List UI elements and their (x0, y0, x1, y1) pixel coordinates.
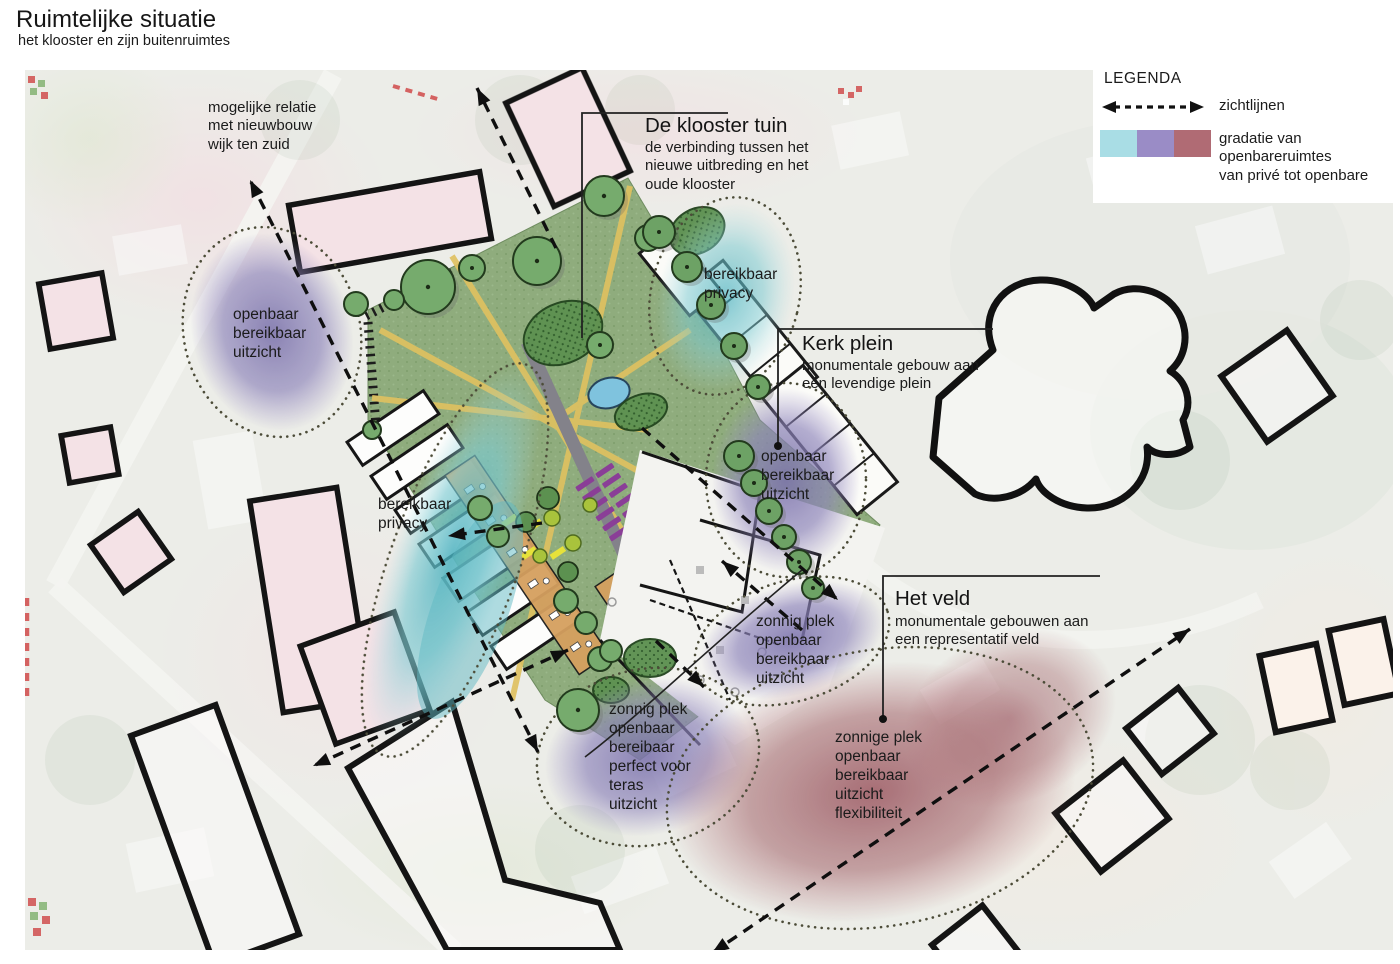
site-plan-page: Ruimtelijke situatie het klooster en zij… (0, 0, 1400, 964)
callout-klooster-tuin-title: De klooster tuin (645, 114, 787, 138)
relation-note: mogelijke relatie met nieuwbouw wijk ten… (208, 99, 316, 154)
page-subtitle: het klooster en zijn buitenruimtes (18, 33, 230, 49)
legend-heading: LEGENDA (1104, 70, 1182, 88)
swatch-semi-icon (1137, 130, 1174, 157)
callout-het-veld-title: Het veld (895, 587, 970, 611)
swatch-public-icon (1174, 130, 1211, 157)
legend-sightlines-label: zichtlijnen (1219, 97, 1285, 114)
legend-gradient-swatches (1100, 130, 1211, 157)
callout-het-veld-sub: monumentale gebouwen aan een representat… (895, 613, 1088, 650)
legend-gradient-label: gradatie van openbareruimtes van privé t… (1219, 130, 1368, 185)
callout-kerk-plein-sub: monumentale gebouw aan een levendige ple… (802, 357, 979, 394)
zone-label-zonnige-veld: zonnige plek openbaar bereikbaar uitzich… (835, 729, 922, 824)
zone-label-bereikbaar-west: bereikbaar privacy (378, 496, 451, 534)
sightline-legend-icon (1100, 97, 1210, 117)
zone-label-zonnig-plein: zonnig plek openbaar bereikbaar uitzicht (756, 613, 834, 689)
zone-label-bereikbaar-noord: bereikbaar privacy (704, 266, 777, 304)
zone-label-openbaar-west: openbaar bereikbaar uitzicht (233, 306, 306, 363)
swatch-private-icon (1100, 130, 1137, 157)
zone-label-openbaar-plein: openbaar bereikbaar uitzicht (761, 448, 834, 505)
callout-kerk-plein-title: Kerk plein (802, 332, 893, 356)
zone-label-zonnig-teras: zonnig plek openbaar bereibaar perfect v… (609, 701, 691, 814)
page-title: Ruimtelijke situatie (16, 6, 216, 34)
legend-panel: LEGENDA zichtlijnen gradatie van openbar… (1093, 64, 1393, 203)
callout-klooster-tuin-sub: de verbinding tussen het nieuwe uitbredi… (645, 139, 808, 194)
